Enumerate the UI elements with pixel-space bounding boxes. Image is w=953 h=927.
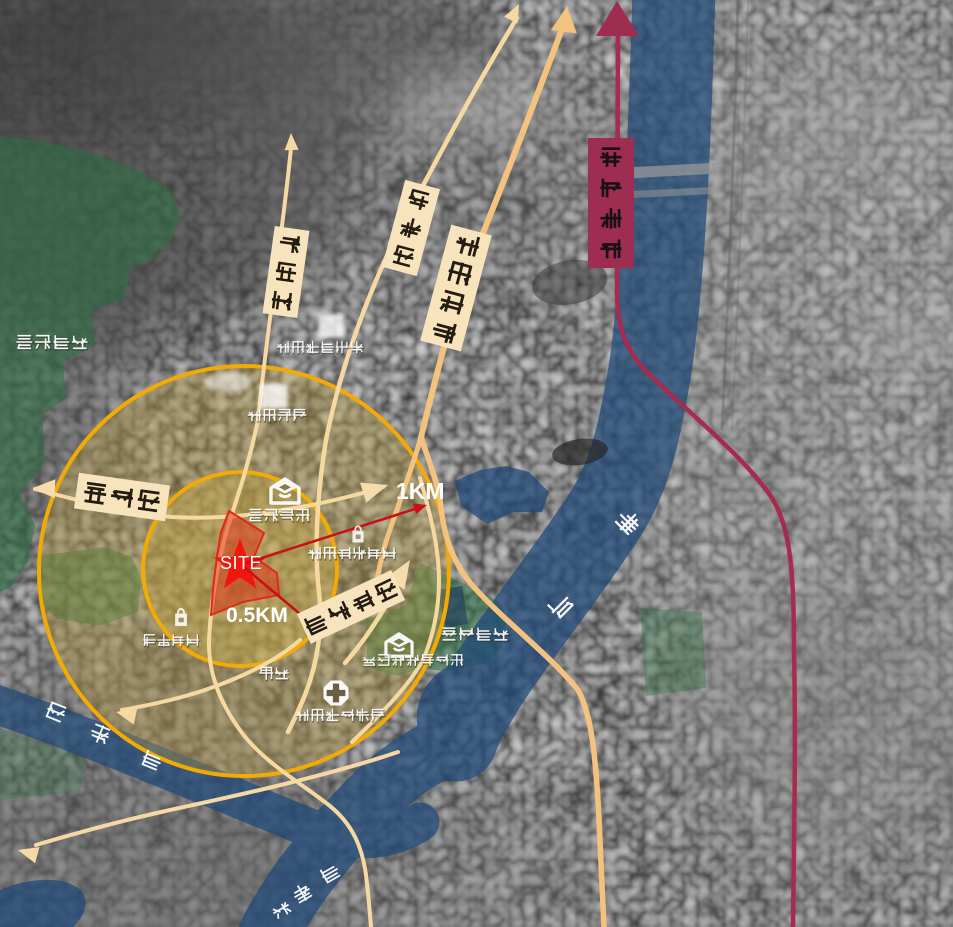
svg-text:1KM: 1KM <box>396 478 445 504</box>
svg-text:SITE: SITE <box>220 553 262 573</box>
svg-text:0.5KM: 0.5KM <box>226 604 288 627</box>
